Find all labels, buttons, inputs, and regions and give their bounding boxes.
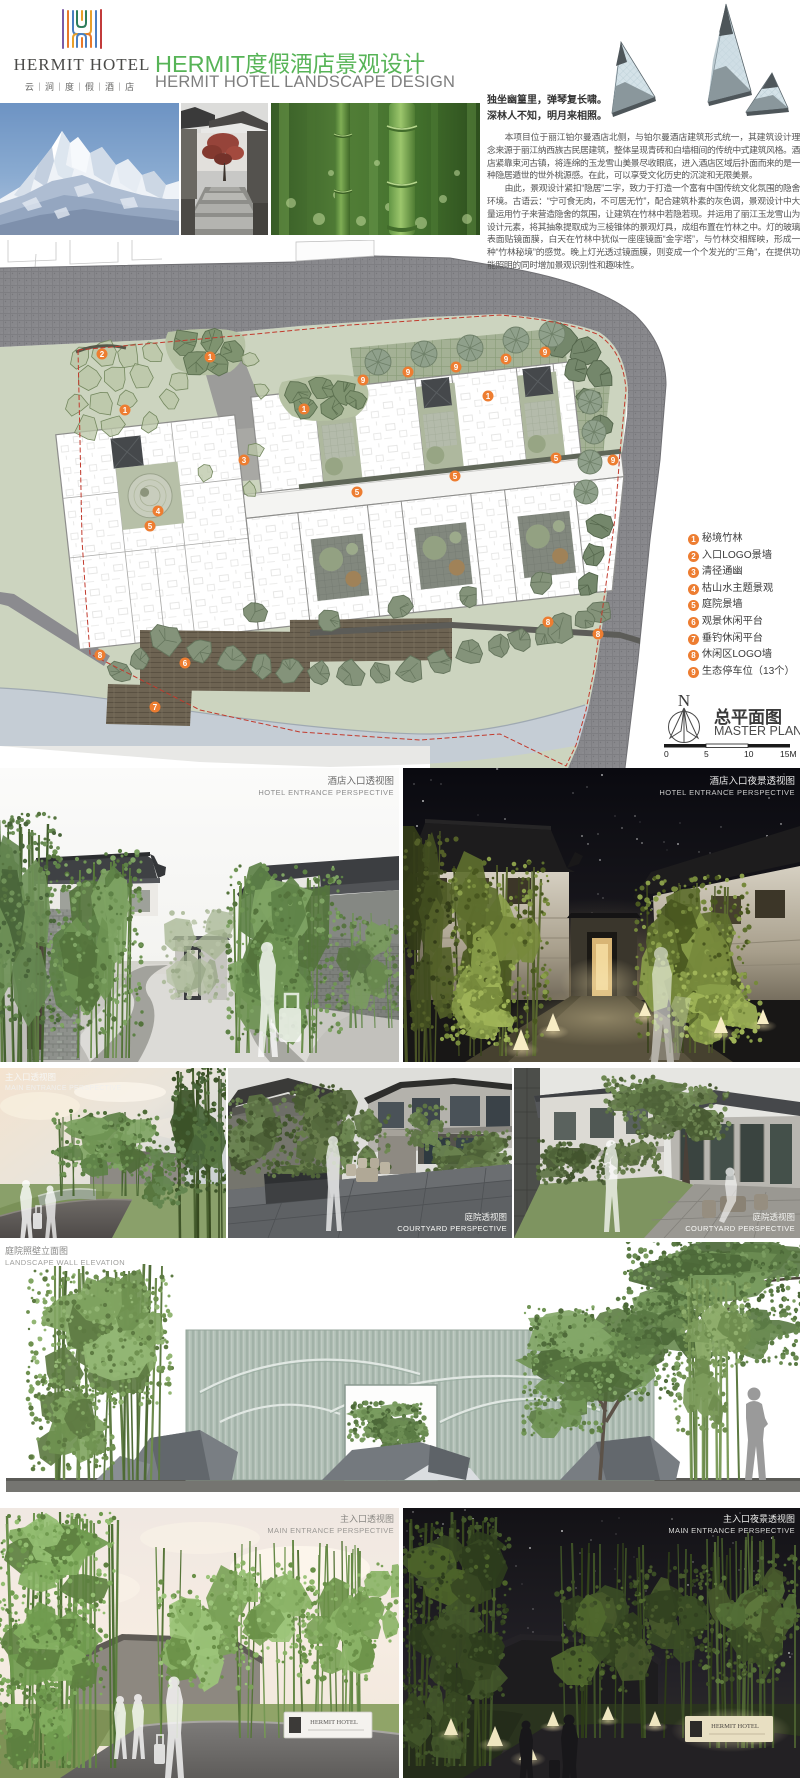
svg-text:8: 8 — [98, 651, 103, 660]
svg-text:主入口透视图: 主入口透视图 — [5, 1072, 56, 1082]
svg-text:15M: 15M — [780, 749, 797, 758]
svg-text:1: 1 — [302, 405, 307, 414]
svg-text:5: 5 — [148, 522, 153, 531]
svg-text:5: 5 — [355, 488, 360, 497]
svg-text:0: 0 — [664, 749, 669, 758]
svg-text:HOTEL ENTRANCE PERSPECTIVE: HOTEL ENTRANCE PERSPECTIVE — [258, 788, 394, 797]
svg-text:1: 1 — [486, 392, 491, 401]
svg-text:5: 5 — [554, 454, 559, 463]
svg-text:9: 9 — [611, 456, 616, 465]
svg-text:8: 8 — [546, 618, 551, 627]
svg-text:4: 4 — [156, 507, 161, 516]
svg-text:酒店入口夜景透视图: 酒店入口夜景透视图 — [709, 775, 795, 787]
svg-text:庭院透视图: 庭院透视图 — [752, 1212, 795, 1222]
svg-text:9: 9 — [361, 376, 366, 385]
svg-text:庭院透视图: 庭院透视图 — [464, 1212, 507, 1222]
svg-text:9: 9 — [406, 368, 411, 377]
svg-text:HOTEL ENTRANCE PERSPECTIVE: HOTEL ENTRANCE PERSPECTIVE — [659, 788, 795, 797]
svg-text:9: 9 — [454, 363, 459, 372]
svg-text:5: 5 — [453, 472, 458, 481]
svg-text:8: 8 — [596, 630, 601, 639]
svg-text:MAIN ENTRANCE PERSPECTIVE: MAIN ENTRANCE PERSPECTIVE — [5, 1085, 121, 1092]
svg-text:7: 7 — [153, 703, 158, 712]
svg-text:1: 1 — [123, 406, 128, 415]
svg-text:9: 9 — [543, 348, 548, 357]
svg-text:酒店入口透视图: 酒店入口透视图 — [327, 775, 394, 787]
svg-text:N: N — [678, 691, 690, 710]
svg-text:9: 9 — [504, 355, 509, 364]
svg-text:COURTYARD PERSPECTIVE: COURTYARD PERSPECTIVE — [397, 1224, 507, 1233]
svg-text:1: 1 — [208, 353, 213, 362]
svg-text:5: 5 — [704, 749, 709, 758]
svg-text:6: 6 — [183, 659, 188, 668]
svg-text:COURTYARD PERSPECTIVE: COURTYARD PERSPECTIVE — [685, 1224, 795, 1233]
svg-text:2: 2 — [100, 350, 105, 359]
svg-text:3: 3 — [242, 456, 247, 465]
svg-text:10: 10 — [744, 749, 754, 758]
